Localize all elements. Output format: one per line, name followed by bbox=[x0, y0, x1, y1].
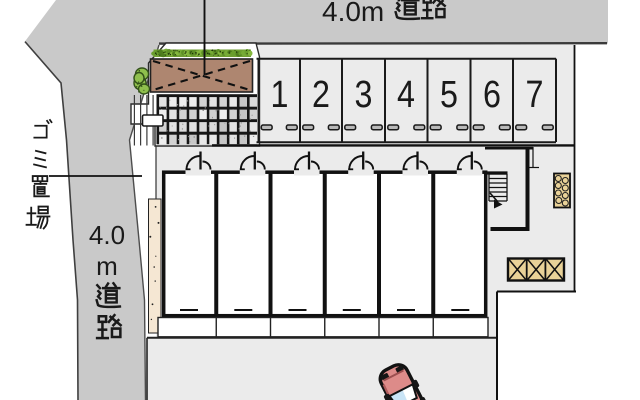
svg-text:4: 4 bbox=[397, 74, 415, 116]
svg-text:4.0: 4.0 bbox=[89, 220, 125, 250]
svg-text:5: 5 bbox=[440, 74, 458, 116]
svg-text:6: 6 bbox=[483, 74, 501, 116]
svg-text:2: 2 bbox=[312, 74, 330, 116]
svg-text:7: 7 bbox=[526, 74, 544, 116]
svg-text:1: 1 bbox=[271, 74, 289, 116]
svg-text:m: m bbox=[96, 251, 118, 281]
svg-text:4.0m: 4.0m bbox=[322, 0, 384, 27]
svg-text:3: 3 bbox=[355, 74, 373, 116]
